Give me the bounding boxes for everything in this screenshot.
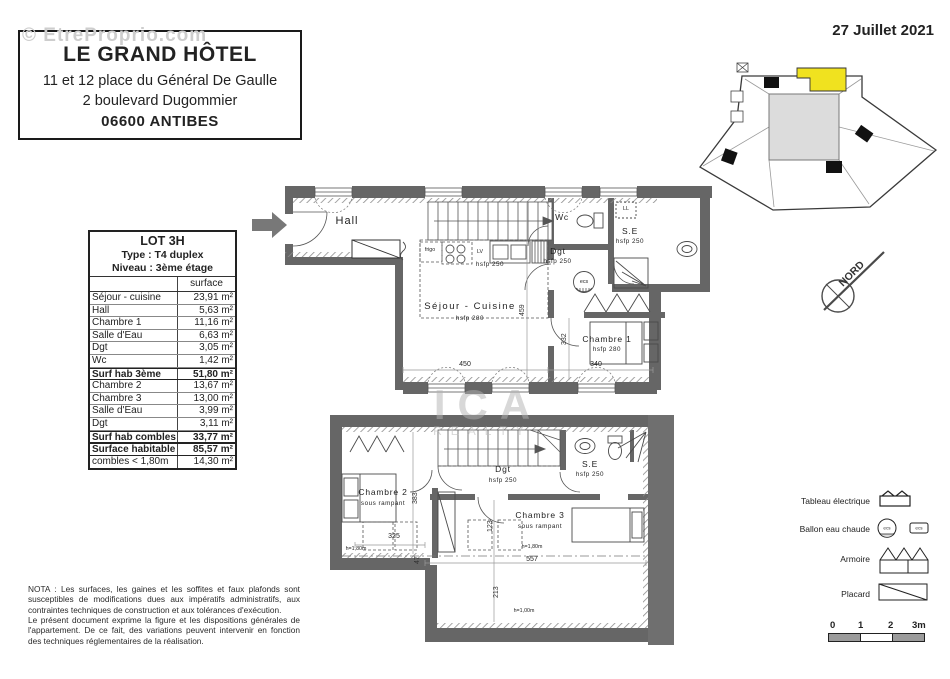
toilet-icon [577, 215, 593, 227]
label-ll: LL [618, 206, 634, 212]
dim-340: 340 [572, 361, 620, 368]
key-plan [700, 63, 936, 210]
legend-label-armoire: Armoire [790, 554, 870, 564]
table-row: Wc1,42 m² [90, 355, 235, 368]
table-row: Chambre 111,16 m² [90, 317, 235, 330]
table-row: Salle d'Eau3,99 m² [90, 405, 235, 418]
table-row: Dgt3,11 m² [90, 418, 235, 431]
lot-level: Niveau : 3ème étage [90, 261, 235, 277]
label-h180-left: h=1,80m [336, 546, 376, 552]
dim-123: 123 [487, 520, 494, 532]
room-height-chambre1: hsfp 280 [575, 346, 639, 353]
room-label-dgt: Dgt [538, 246, 578, 256]
washbasin-icon [677, 242, 697, 257]
washbasin-icon [575, 439, 595, 454]
wardrobe-icon [584, 294, 650, 312]
label-h100: h=1,00m [498, 608, 550, 614]
dim-213: 213 [493, 586, 500, 598]
room-label-dgt2: Dgt [483, 464, 523, 474]
room-label-chambre2: Chambre 2 [343, 487, 423, 497]
compass: NORD [822, 252, 884, 312]
room-sub-chambre2: sous rampant [343, 500, 423, 507]
room-height-sejour: hsfp 280 [400, 315, 540, 322]
table-row-subtotal: Surf hab combles33,77 m² [90, 431, 235, 444]
table-header-row: surface [90, 277, 235, 292]
table-row: combles < 1,80m14,30 m² [90, 456, 235, 469]
dim-47: 47 [414, 556, 421, 564]
scale-3m: 3m [912, 620, 926, 631]
room-height-se: hsfp 250 [604, 238, 656, 245]
room-height-kitchen: hsfp 250 [450, 261, 530, 268]
water-heater-legend-icon: ecs ecs [876, 517, 934, 541]
address-line-2: 2 boulevard Dugommier [20, 93, 300, 109]
label-h180-mid: h=1,80m [506, 544, 558, 550]
table-row: Séjour - cuisine23,91 m² [90, 292, 235, 305]
upper-stairs [428, 202, 553, 240]
dim-332: 332 [561, 333, 568, 345]
watermark-top: © EtreProprio.com [22, 25, 207, 47]
dim-325: 325 [374, 533, 414, 540]
scale-2: 2 [888, 620, 893, 631]
room-label-sejour: Séjour - Cuisine [400, 301, 540, 312]
nota-paragraph-1: NOTA : Les surfaces, les gaines et les s… [28, 584, 300, 615]
label-frigo: frigo [419, 247, 441, 253]
table-row-total: Surface habitable85,57 m² [90, 443, 235, 456]
room-label-chambre3: Chambre 3 [498, 510, 582, 520]
watermark-center-line2: REALTY [408, 424, 558, 438]
scale-1: 1 [858, 620, 863, 631]
plan-date: 27 Juillet 2021 [832, 22, 934, 39]
nota-text: NOTA : Les surfaces, les gaines et les s… [28, 584, 300, 646]
scale-0: 0 [830, 620, 835, 631]
entrance-arrow-icon [252, 212, 287, 238]
room-label-se: S.E [612, 226, 648, 236]
scale-segment [829, 634, 861, 641]
lot-type: Type : T4 duplex [90, 248, 235, 261]
toilet-icon [609, 443, 622, 460]
electrical-panel-icon [878, 490, 914, 508]
legend-label-placard: Placard [790, 589, 870, 599]
armoire-legend-icon [878, 544, 930, 576]
address-city: 06600 ANTIBES [20, 113, 300, 130]
table-row: Chambre 313,00 m² [90, 393, 235, 406]
svg-text:ecs: ecs [915, 526, 923, 531]
lot-title: LOT 3H [90, 232, 235, 248]
placard-legend-icon [878, 583, 930, 603]
bed-icon [572, 508, 644, 542]
wardrobe-icon [350, 436, 404, 452]
scale-bar [828, 633, 925, 642]
table-row: Salle d'Eau6,63 m² [90, 330, 235, 343]
label-lv: LV [474, 249, 486, 255]
svg-text:ecs: ecs [883, 526, 891, 531]
legend-label-tableau-electrique: Tableau électrique [790, 496, 870, 506]
floor-plan-page: NORD 459 332 383 47 123 213 © EtrePropri… [0, 0, 950, 679]
room-height-se2: hsfp 250 [562, 471, 618, 478]
room-height-dgt: hsfp 250 [530, 258, 585, 265]
room-sub-chambre3: sous rampant [498, 523, 582, 530]
bed-icon [342, 474, 396, 522]
table-row: Chambre 213,67 m² [90, 380, 235, 393]
surface-table: LOT 3H Type : T4 duplex Niveau : 3ème ét… [88, 230, 237, 470]
scale-segment [893, 634, 924, 641]
scale-segment [861, 634, 893, 641]
room-height-dgt2: hsfp 250 [475, 477, 531, 484]
table-row: Hall5,63 m² [90, 305, 235, 318]
lower-roof-band [648, 415, 674, 645]
dim-557: 557 [508, 556, 556, 563]
label-ecs: ecs [574, 279, 594, 285]
watermark-center-line1: ICA [398, 381, 578, 429]
address-line-1: 11 et 12 place du Général De Gaulle [20, 73, 300, 89]
room-label-se2: S.E [570, 459, 610, 469]
table-row: Dgt3,05 m² [90, 342, 235, 355]
dim-450: 450 [440, 361, 490, 368]
room-label-hall: Hall [322, 215, 372, 227]
legend-label-ballon-eau-chaude: Ballon eau chaude [790, 524, 870, 534]
room-label-wc: Wc [550, 212, 574, 222]
table-row-subtotal: Surf hab 3ème51,80 m² [90, 368, 235, 381]
room-label-chambre1: Chambre 1 [575, 334, 639, 344]
nota-paragraph-2: Le présent document exprime la figure et… [28, 615, 300, 646]
